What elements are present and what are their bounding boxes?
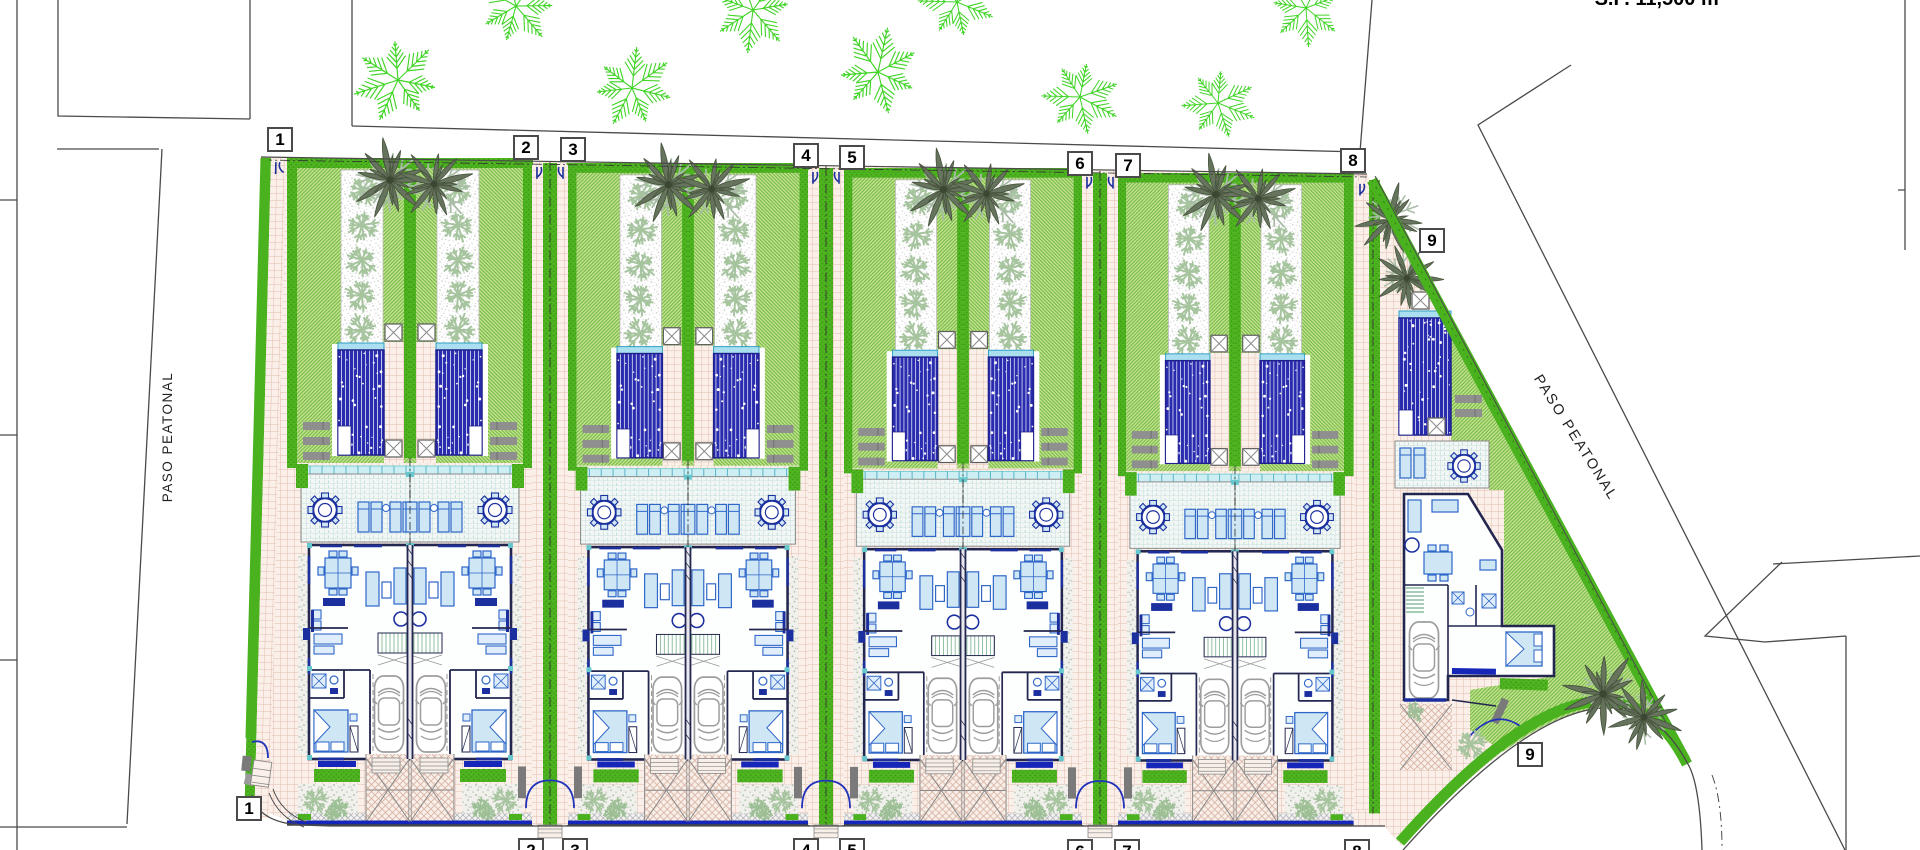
svg-text:7: 7 (1123, 156, 1132, 175)
svg-text:1: 1 (275, 130, 284, 149)
svg-text:9: 9 (1427, 231, 1436, 250)
svg-text:PASO PEATONAL: PASO PEATONAL (160, 372, 175, 503)
svg-text:8: 8 (1352, 842, 1361, 850)
svg-text:5: 5 (847, 841, 856, 850)
svg-text:2: 2 (521, 138, 530, 157)
svg-text:4: 4 (801, 841, 811, 850)
svg-text:2: 2 (526, 841, 535, 850)
svg-text:3: 3 (568, 140, 577, 159)
svg-text:6: 6 (1075, 154, 1084, 173)
svg-text:6: 6 (1075, 842, 1084, 850)
svg-text:8: 8 (1348, 151, 1357, 170)
svg-text:5: 5 (847, 148, 856, 167)
svg-text:4: 4 (801, 146, 811, 165)
svg-text:1: 1 (244, 799, 253, 818)
svg-text:9: 9 (1525, 745, 1534, 764)
svg-text:7: 7 (1122, 842, 1131, 850)
svg-text:3: 3 (570, 841, 579, 850)
svg-text:S.P. 11,500 m²: S.P. 11,500 m² (1595, 0, 1726, 10)
